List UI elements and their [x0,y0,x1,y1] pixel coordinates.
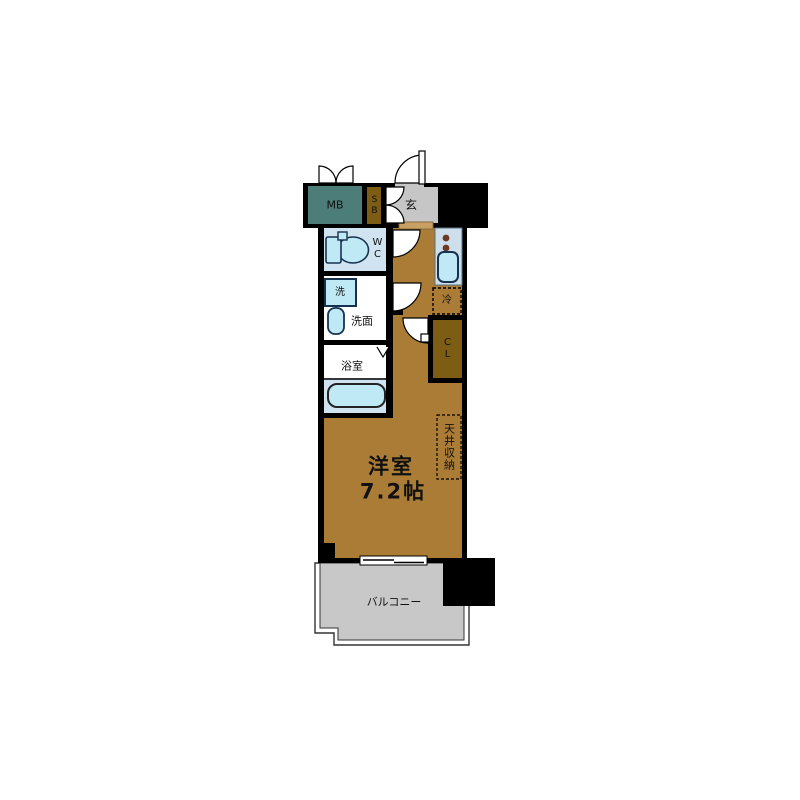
bathtub [328,384,385,407]
ceiling-storage-label: 天井収納 [444,423,455,471]
meter-box-door-right [336,166,353,183]
refrigerator-label: 冷 [442,296,452,306]
right-wall [462,228,467,558]
toilet-cistern-button [338,232,347,240]
toilet-bowl [338,237,369,263]
meter-box-door-left [319,166,336,183]
kitchen-sink [438,252,458,282]
stove-burner-icon [443,245,450,252]
floor-plan-canvas [0,0,800,800]
main-room-name-label: 洋室 [368,457,414,478]
bottom-right-pillar [443,558,495,606]
bath-room-wall [318,413,393,418]
entrance-door-leaf [419,151,425,184]
wc-label: WC [372,237,382,261]
shoe-box-label: SB [370,195,379,217]
washroom-bath-wall [318,340,393,345]
bottom-left-pillar [318,543,335,563]
meter-box-label: MB [326,200,343,211]
bathroom-label: 浴室 [341,361,363,372]
washroom-label: 洗面 [351,316,373,327]
washing-machine-label: 洗 [335,288,345,298]
stove-burner-icon [443,235,450,242]
entrance-label: 玄 [405,199,417,211]
closet-label: CL [442,337,452,361]
room-door-handle [421,334,429,342]
toilet-tank [326,237,341,263]
balcony-label: バルコニー [367,597,422,608]
main-room-size-label: 7.2帖 [360,482,426,503]
corridor-left-wall [386,228,393,417]
wc-washroom-wall [318,271,393,276]
floor-plan: MB SB 玄 WC 洗 洗面 浴室 冷 CL 天井収納 洋室 7.2帖 バルコ… [0,0,800,800]
washbasin [328,308,344,334]
